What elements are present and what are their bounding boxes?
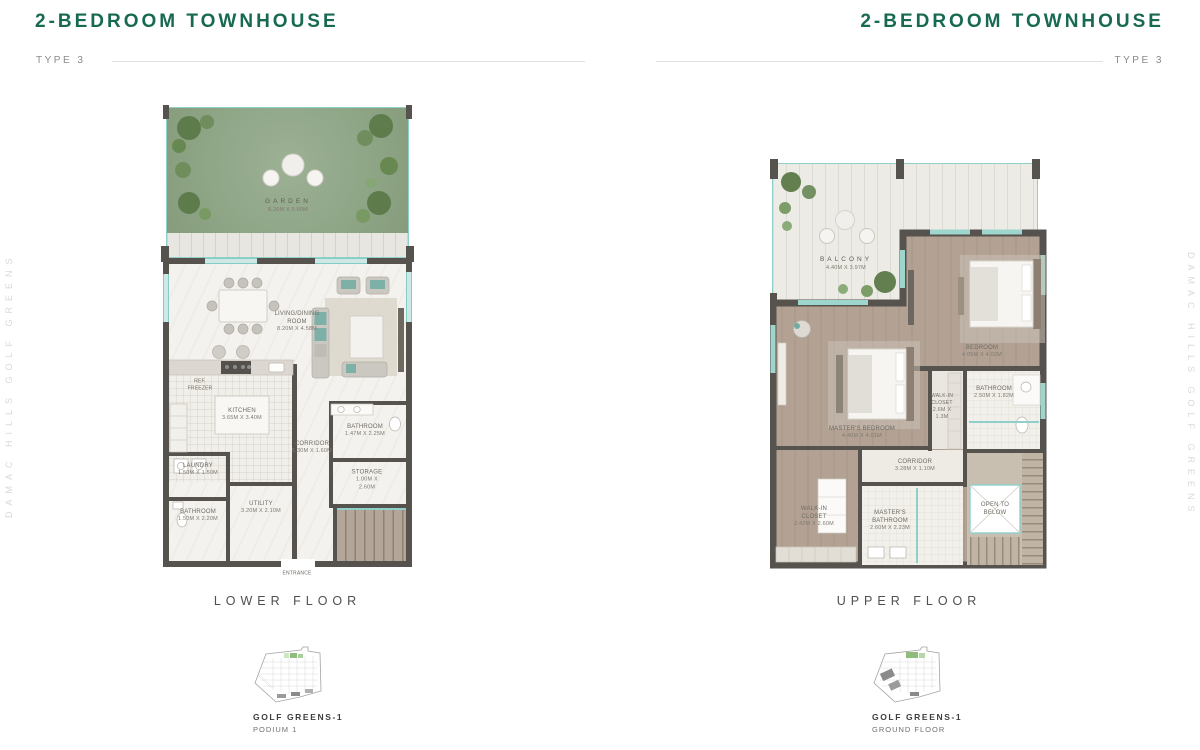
- sink-icon: [890, 547, 906, 558]
- room-label-bathroom: BATHROOM 2.50M X 1.82M: [972, 385, 1016, 401]
- garden-area: GARDEN 8.20M X 5.60M: [166, 107, 409, 258]
- console-icon: [778, 343, 786, 405]
- site-plan-ground: [866, 646, 950, 710]
- wall-stub: [161, 246, 169, 262]
- floor-plan-upper: BALCONY 4.40M X 3.97M: [770, 155, 1048, 570]
- armchair-icon: [794, 321, 811, 338]
- watermark-right: DAMAC HILLS GOLF GREENS: [1186, 215, 1196, 555]
- page-title-right: 2-BEDROOM TOWNHOUSE: [860, 11, 1164, 33]
- divider-line-left: [112, 61, 585, 62]
- tv-console-icon: [398, 308, 404, 372]
- lower-floor-caption: LOWER FLOOR: [166, 594, 409, 608]
- site-plan-podium: [247, 646, 331, 710]
- lower-building: LIVING/DINING ROOM 8.20M X 4.58M KITCHEN…: [163, 258, 412, 567]
- toilet-icon: [390, 417, 401, 431]
- open-to-below-label: OPEN TO BELOW: [978, 501, 1012, 517]
- room-label-living-dining: LIVING/DINING ROOM 8.20M X 4.58M: [272, 310, 322, 334]
- stairs: [970, 537, 1020, 565]
- divider-line-right: [656, 61, 1103, 62]
- room-label-walkin-a: WALK-IN CLOSET 2.6M X 1.3M: [926, 393, 958, 421]
- window: [163, 274, 169, 322]
- entrance-label: ENTRANCE: [282, 571, 311, 578]
- shower-glass-icon: [969, 421, 1039, 423]
- type-label-right: TYPE 3: [1115, 55, 1164, 66]
- highlight-unit: [290, 653, 297, 658]
- room-label-master-bedroom: MASTER'S BEDROOM 4.40M X 4.01M: [827, 425, 897, 441]
- sink-icon: [868, 547, 884, 558]
- window: [205, 258, 257, 264]
- entrance-opening: [281, 559, 315, 569]
- room-label-kitchen: KITCHEN 3.65M X 3.40M: [222, 407, 262, 423]
- room-label-balcony: BALCONY 4.40M X 3.97M: [820, 256, 872, 272]
- room-label-corridor: CORRIDOR 5.30M X 1.60M: [292, 440, 332, 456]
- label-ref-freezer: REF. FREEZER: [187, 378, 213, 392]
- stool-icon: [213, 346, 226, 359]
- headboard-icon: [1033, 259, 1041, 329]
- garden-trees-icon: [167, 108, 407, 233]
- site-title-right: GOLF GREENS-1: [872, 712, 962, 722]
- garden-seating-icon: [263, 154, 323, 186]
- deck-planks: [167, 233, 408, 257]
- room-label-utility: UTILITY 3.20M X 2.10M: [241, 500, 281, 516]
- site-subtitle-left: PODIUM 1: [253, 725, 297, 734]
- type-label-left: TYPE 3: [36, 55, 85, 66]
- window: [315, 258, 367, 264]
- wall-stub: [406, 246, 414, 262]
- room-label-walkin-b: WALK-IN CLOSET 2.42M X 2.60M: [791, 505, 837, 529]
- room-label-storage: STORAGE 1.00M X 2.60M: [348, 469, 387, 492]
- wall-stub: [163, 105, 169, 119]
- shelving-icon: [776, 547, 856, 562]
- stairs: [1022, 453, 1043, 565]
- tv-console-icon: [908, 270, 914, 325]
- room-label-bathroom-a: BATHROOM 1.50M X 2.20M: [177, 508, 219, 524]
- sofa-set-icon: [312, 277, 404, 378]
- kitchen-icons: [169, 346, 293, 453]
- room-label-bedroom: BEDROOM 4.05M X 4.02M: [962, 344, 1002, 360]
- room-label-bathroom-b: BATHROOM 1.47M X 2.25M: [345, 423, 385, 439]
- bench-icon: [836, 355, 843, 413]
- room-label-master-bathroom: MASTER'S BATHROOM 2.60M X 2.23M: [862, 509, 918, 533]
- room-label-laundry: LAUNDRY 1.50M X 1.50M: [177, 462, 219, 478]
- window: [406, 272, 412, 322]
- sink-icon: [269, 363, 284, 372]
- bench-icon: [958, 277, 964, 315]
- page-title-left: 2-BEDROOM TOWNHOUSE: [35, 11, 339, 33]
- stool-icon: [237, 346, 250, 359]
- watermark-left: DAMAC HILLS GOLF GREENS: [4, 215, 14, 555]
- highlight-unit: [906, 652, 918, 658]
- upper-floor-caption: UPPER FLOOR: [770, 594, 1048, 608]
- wall-stub: [406, 105, 412, 119]
- dining-set-icon: [207, 278, 279, 334]
- site-subtitle-right: GROUND FLOOR: [872, 725, 945, 734]
- site-title-left: GOLF GREENS-1: [253, 712, 343, 722]
- room-label-corridor: CORRIDOR 3.28M X 1.10M: [895, 458, 935, 474]
- brochure-page: 2-BEDROOM TOWNHOUSE 2-BEDROOM TOWNHOUSE …: [0, 0, 1200, 750]
- headboard-icon: [906, 347, 914, 421]
- toilet-icon: [1016, 417, 1028, 433]
- floor-plan-lower: GARDEN 8.20M X 5.60M: [166, 107, 409, 567]
- room-label-garden: GARDEN 8.20M X 5.60M: [265, 198, 311, 214]
